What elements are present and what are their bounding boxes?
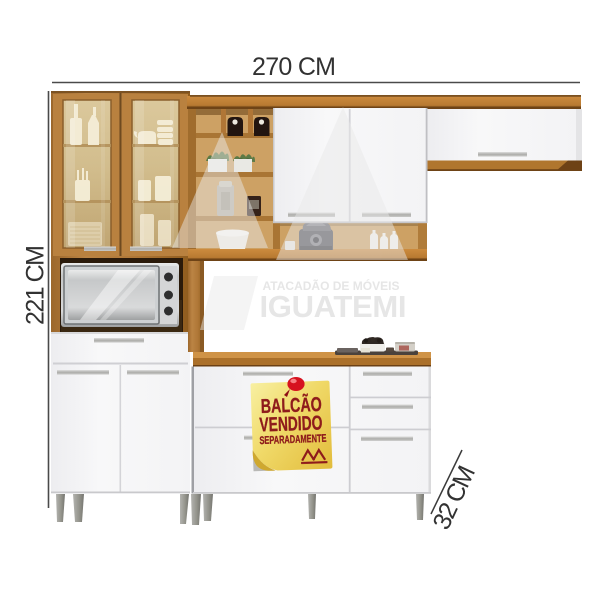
svg-text:SEPARADAMENTE: SEPARADAMENTE [259, 433, 326, 447]
svg-text:221 CM: 221 CM [22, 245, 50, 325]
svg-text:IGUATEMI: IGUATEMI [260, 289, 407, 324]
svg-text:32 CM: 32 CM [427, 461, 481, 534]
svg-text:270 CM: 270 CM [252, 53, 336, 81]
